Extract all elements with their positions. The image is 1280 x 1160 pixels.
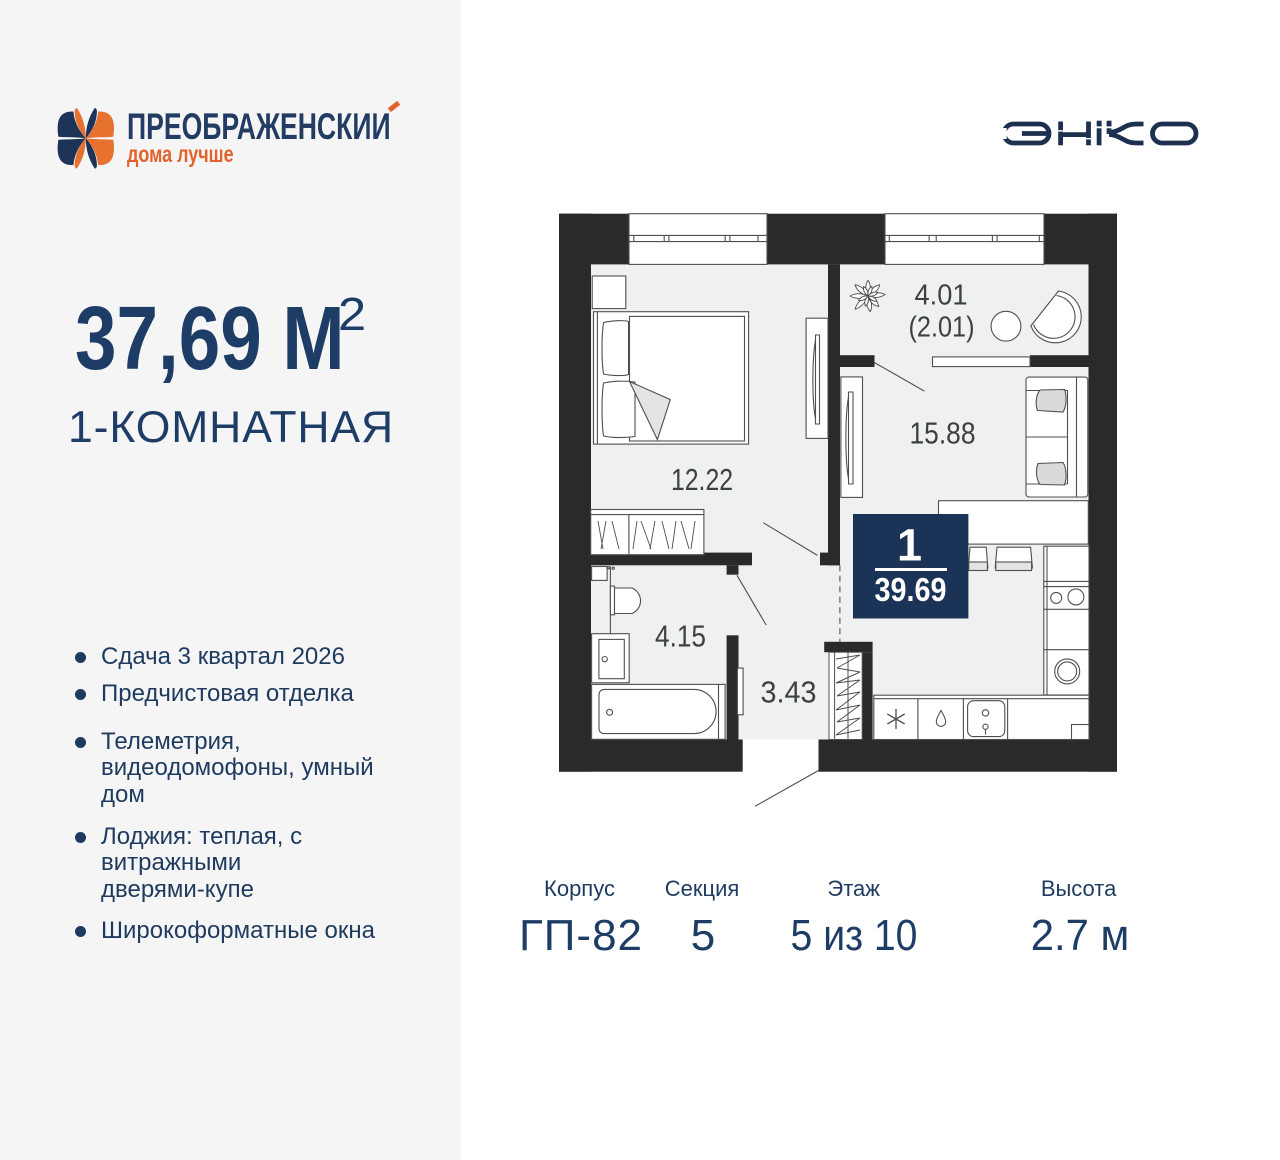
svg-text:4.15: 4.15	[655, 619, 706, 654]
svg-text:3.43: 3.43	[761, 675, 817, 710]
svg-text:(2.01): (2.01)	[909, 312, 975, 344]
svg-text:15.88: 15.88	[910, 416, 976, 451]
svg-text:12.22: 12.22	[671, 462, 733, 497]
svg-text:39.69: 39.69	[875, 571, 947, 608]
svg-text:1: 1	[897, 519, 922, 570]
svg-text:4.01: 4.01	[915, 280, 968, 312]
